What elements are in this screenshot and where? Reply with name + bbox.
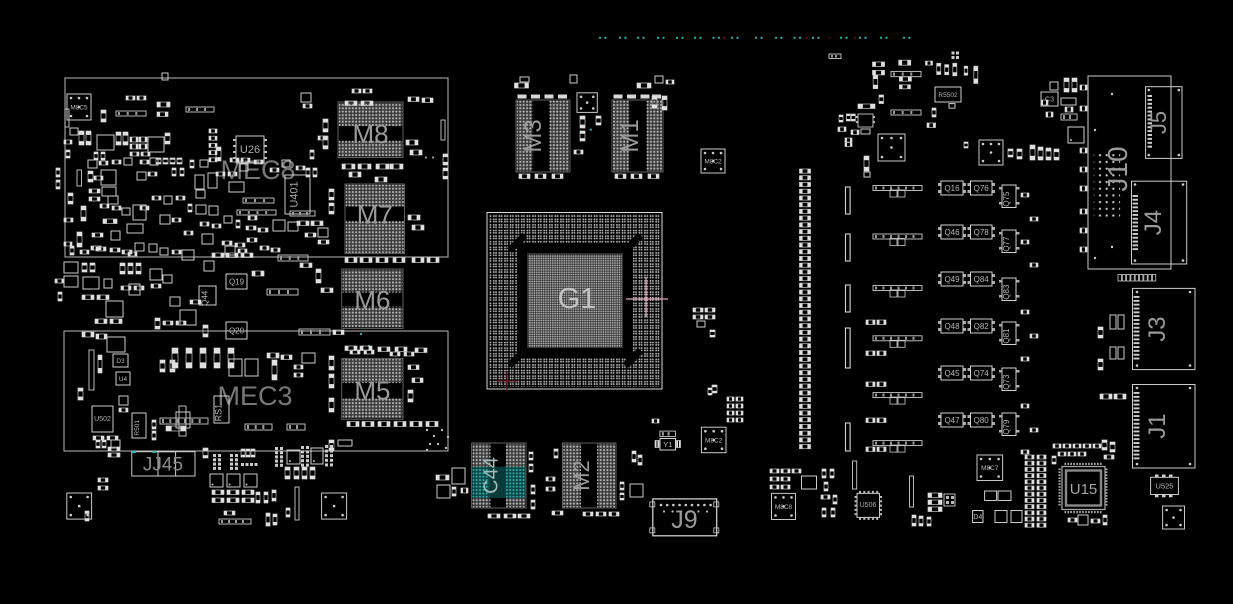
- svg-text:M1: M1: [617, 119, 644, 152]
- svg-text:J4: J4: [1140, 210, 1167, 235]
- svg-text:Q78: Q78: [974, 228, 990, 237]
- svg-text:M8C8: M8C8: [775, 504, 793, 511]
- svg-text:U26: U26: [240, 144, 260, 156]
- svg-text:Q74: Q74: [974, 369, 990, 378]
- svg-text:Q44: Q44: [201, 290, 210, 306]
- svg-text:M8: M8: [352, 119, 388, 149]
- svg-text:J5: J5: [1146, 111, 1171, 134]
- svg-text:R5502: R5502: [938, 92, 958, 99]
- svg-text:U502: U502: [94, 416, 111, 423]
- svg-text:M7: M7: [357, 199, 393, 229]
- svg-text:Q16: Q16: [944, 184, 960, 193]
- svg-text:U15: U15: [1070, 481, 1098, 498]
- svg-text:Q76: Q76: [974, 184, 990, 193]
- svg-text:C44: C44: [481, 457, 503, 494]
- svg-text:JJ45: JJ45: [143, 455, 183, 476]
- svg-text:M5: M5: [354, 376, 390, 406]
- svg-text:Q46: Q46: [944, 228, 960, 237]
- svg-text:M8C7: M8C7: [981, 465, 999, 472]
- svg-text:U525: U525: [1156, 482, 1174, 491]
- svg-text:M2: M2: [569, 460, 594, 491]
- svg-text:Q19: Q19: [229, 277, 245, 286]
- svg-text:Q81: Q81: [1002, 328, 1011, 344]
- svg-text:RS1: RS1: [214, 404, 224, 422]
- svg-text:Q45: Q45: [944, 369, 960, 378]
- svg-text:Q77: Q77: [1002, 236, 1011, 252]
- svg-text:D3: D3: [116, 358, 125, 365]
- svg-text:Q47: Q47: [944, 416, 960, 425]
- svg-text:Q82: Q82: [974, 322, 990, 331]
- svg-text:Q48: Q48: [944, 322, 960, 331]
- svg-text:M8C2: M8C2: [705, 437, 723, 444]
- svg-text:D4: D4: [973, 514, 982, 521]
- svg-text:Q75: Q75: [1002, 191, 1011, 207]
- svg-text:U506: U506: [860, 502, 877, 509]
- svg-text:U4: U4: [119, 376, 128, 383]
- svg-text:G1: G1: [558, 283, 597, 315]
- svg-text:Q73: Q73: [1002, 374, 1011, 390]
- svg-text:M6: M6: [354, 285, 390, 315]
- svg-text:Q79: Q79: [1002, 419, 1011, 435]
- svg-text:J1: J1: [1144, 413, 1171, 438]
- svg-text:Q20: Q20: [229, 326, 245, 335]
- svg-text:R501: R501: [134, 420, 141, 436]
- svg-text:M3: M3: [520, 119, 547, 152]
- svg-text:Q84: Q84: [974, 275, 990, 284]
- svg-text:M8C5: M8C5: [70, 105, 88, 112]
- svg-text:J3: J3: [1144, 316, 1171, 341]
- svg-text:J9: J9: [671, 506, 697, 534]
- svg-text:Q83: Q83: [1002, 284, 1011, 300]
- svg-text:Q49: Q49: [944, 275, 960, 284]
- svg-text:U401: U401: [289, 181, 301, 207]
- svg-text:Y1: Y1: [663, 440, 672, 449]
- svg-text:M8C2: M8C2: [704, 159, 722, 166]
- svg-text:J10: J10: [1102, 146, 1133, 191]
- svg-text:Q80: Q80: [974, 416, 990, 425]
